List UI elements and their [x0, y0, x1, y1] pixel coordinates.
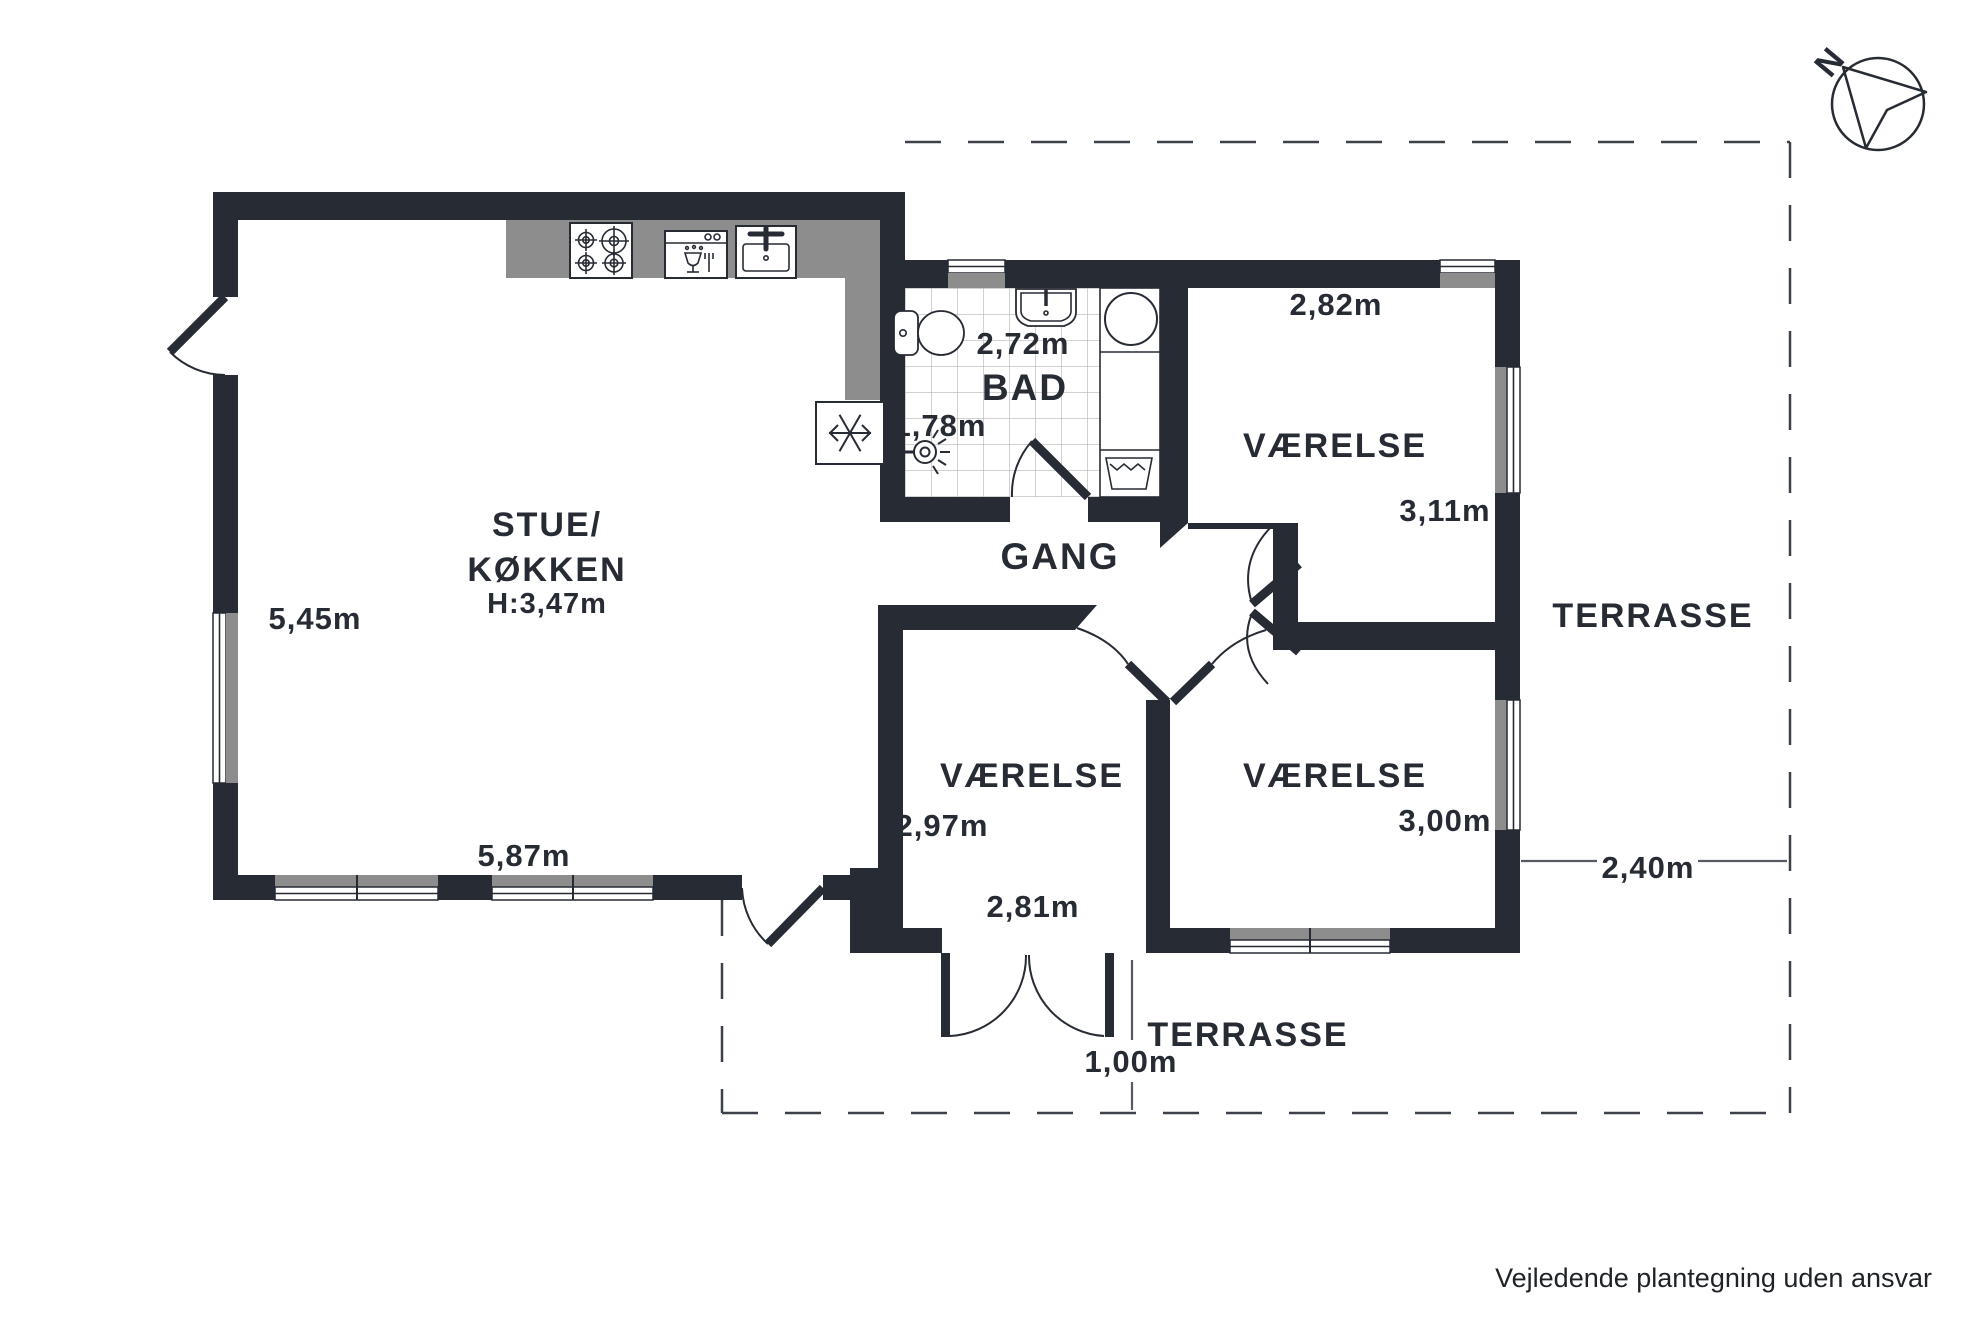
dim-terrasse-e-width: 2,40m — [1602, 850, 1695, 885]
disclaimer-text: Vejledende plantegning uden ansvar — [1495, 1263, 1932, 1293]
room-labels: STUE/ KØKKEN H:3,47m 5,45m 5,87m BAD 2,7… — [269, 287, 1754, 1079]
dim-stue-depth: 5,45m — [269, 601, 362, 636]
label-terrasse-e: TERRASSE — [1552, 597, 1753, 635]
kitchen-sink-icon — [736, 226, 796, 278]
refrigerator-snowflake-icon — [816, 402, 884, 464]
dim-vaerelse-ne-depth: 3,11m — [1399, 493, 1490, 528]
dishwasher-icon — [665, 231, 727, 278]
label-stue: STUE/ — [492, 506, 602, 544]
label-ceiling-height: H:3,47m — [487, 588, 607, 620]
window-stue-left — [213, 613, 238, 783]
window-bad-top — [948, 260, 1005, 288]
dimension-lines — [1132, 861, 1787, 1110]
toilet-icon — [894, 311, 964, 355]
dim-terrasse-s-door: 1,00m — [1085, 1044, 1178, 1079]
label-vaerelse-s: VÆRELSE — [940, 757, 1124, 795]
north-arrow-icon — [1843, 67, 1926, 148]
dim-vaerelse-s-width: 2,81m — [987, 889, 1080, 924]
label-koekken: KØKKEN — [467, 551, 626, 589]
door-entrance-bottom — [742, 888, 823, 944]
label-gang: GANG — [1001, 536, 1120, 577]
window-stue-bottom-1 — [275, 875, 438, 900]
compass: N — [1807, 41, 1926, 150]
label-bad: BAD — [982, 367, 1068, 408]
label-vaerelse-ne: VÆRELSE — [1243, 427, 1427, 465]
dim-bad-depth: 1,78m — [894, 408, 987, 443]
window-se-bottom — [1230, 928, 1390, 953]
dim-vaerelse-ne-width: 2,82m — [1290, 287, 1383, 322]
stove-icon — [570, 223, 632, 278]
window-ne-right — [1495, 367, 1520, 493]
floor-plan: STUE/ KØKKEN H:3,47m 5,45m 5,87m BAD 2,7… — [0, 0, 1984, 1323]
window-ne-top — [1440, 260, 1495, 288]
window-stue-bottom-2 — [492, 875, 653, 900]
dim-vaerelse-se-width: 3,00m — [1399, 803, 1492, 838]
door-stue-left — [170, 297, 225, 375]
floor-plan-page: STUE/ KØKKEN H:3,47m 5,45m 5,87m BAD 2,7… — [0, 0, 1984, 1323]
door-vaerelse-se-south — [1173, 630, 1266, 702]
dim-stue-width: 5,87m — [478, 838, 571, 873]
door-french-terrace — [941, 953, 1114, 1037]
dim-vaerelse-s-depth: 2,97m — [896, 808, 989, 843]
door-vaerelse-s — [1077, 628, 1167, 702]
label-vaerelse-se: VÆRELSE — [1243, 757, 1427, 795]
washbasin-icon — [1016, 289, 1076, 326]
window-se-right — [1495, 700, 1520, 830]
dim-bad-width: 2,72m — [977, 326, 1070, 361]
label-terrasse-s: TERRASSE — [1147, 1016, 1348, 1054]
